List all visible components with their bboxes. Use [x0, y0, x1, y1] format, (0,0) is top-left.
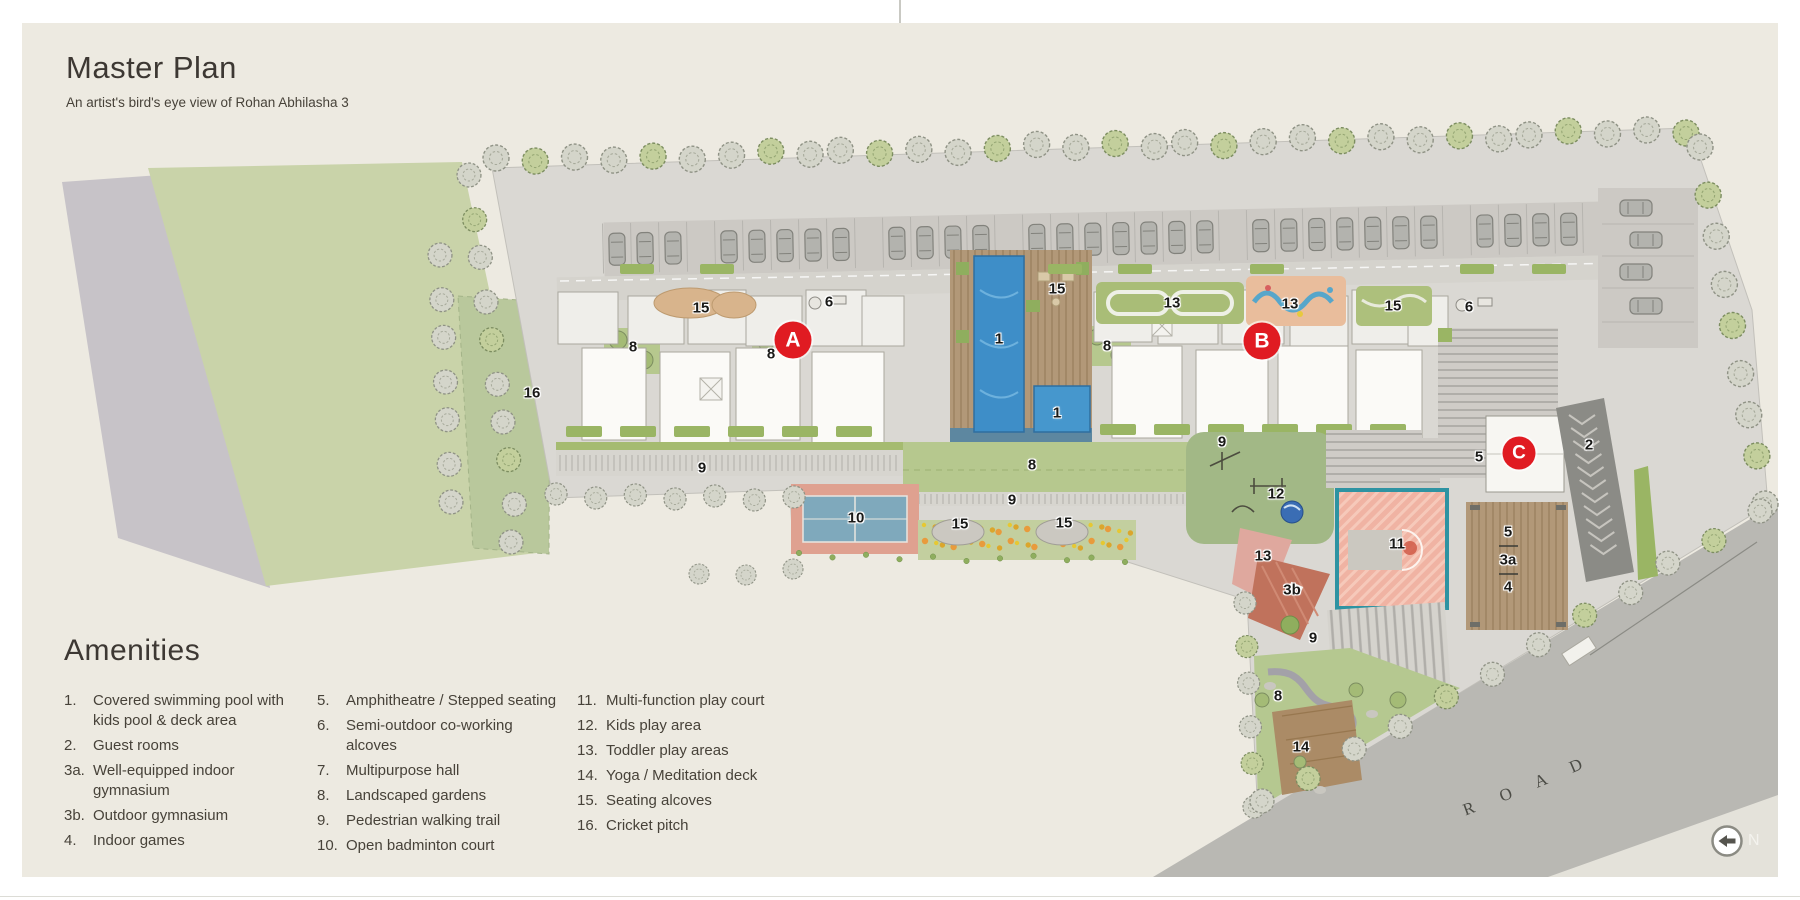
amenity-number: 1. — [64, 691, 93, 731]
amenity-label: Amphitheatre / Stepped seating — [346, 691, 556, 711]
amenity-label: Multipurpose hall — [346, 761, 459, 781]
amenity-number: 8. — [317, 786, 346, 806]
plan-amenity-label: 15 — [693, 300, 710, 317]
amenity-row: 7.Multipurpose hall — [317, 761, 567, 781]
amenities-heading: Amenities — [64, 634, 200, 668]
amenity-label: Multi-function play court — [606, 691, 764, 711]
amenity-number: 16. — [577, 816, 606, 836]
amenity-label: Covered swimming pool with kids pool & d… — [93, 691, 284, 731]
amenity-row: 12.Kids play area — [577, 716, 827, 736]
amenity-number: 7. — [317, 761, 346, 781]
plan-amenity-label: 11 — [1389, 536, 1405, 553]
plan-amenity-label: 9 — [1008, 492, 1016, 509]
plan-amenity-label: 13 — [1282, 296, 1299, 313]
plan-amenity-label: 8 — [1028, 457, 1036, 474]
amenity-label: Seating alcoves — [606, 791, 712, 811]
plan-amenity-label: 5 — [1475, 449, 1483, 466]
amenity-number: 12. — [577, 716, 606, 736]
plan-amenity-label: 6 — [825, 294, 833, 311]
amenity-label: Guest rooms — [93, 736, 179, 756]
amenity-label: Cricket pitch — [606, 816, 689, 836]
amenity-number: 5. — [317, 691, 346, 711]
plan-amenity-label: 16 — [524, 385, 541, 402]
building-marker-c: C — [1503, 437, 1536, 470]
amenity-number: 6. — [317, 716, 346, 756]
amenity-label: Landscaped gardens — [346, 786, 486, 806]
amenities-column-3: 11.Multi-function play court12.Kids play… — [577, 691, 827, 841]
amenity-label: Toddler play areas — [606, 741, 729, 761]
amenity-number: 13. — [577, 741, 606, 761]
plan-amenity-label: 8 — [1274, 688, 1282, 705]
plan-amenity-label: 1 — [995, 331, 1003, 348]
amenity-number: 9. — [317, 811, 346, 831]
page-subtitle: An artist's bird's eye view of Rohan Abh… — [66, 95, 349, 110]
north-label: N — [1748, 832, 1760, 850]
amenity-number: 11. — [577, 691, 606, 711]
amenity-row: 13.Toddler play areas — [577, 741, 827, 761]
plan-amenity-label: 8 — [629, 339, 637, 356]
plan-amenity-label: 13 — [1255, 548, 1272, 565]
amenity-row: 9.Pedestrian walking trail — [317, 811, 567, 831]
amenity-number: 14. — [577, 766, 606, 786]
plan-amenity-label: 3a — [1500, 552, 1517, 569]
amenity-row: 14.Yoga / Meditation deck — [577, 766, 827, 786]
amenity-label: Pedestrian walking trail — [346, 811, 500, 831]
plan-amenity-label: 9 — [1309, 630, 1317, 647]
page-header: Master Plan An artist's bird's eye view … — [66, 50, 349, 110]
amenity-row: 10.Open badminton court — [317, 836, 567, 856]
plan-amenity-label: 9 — [698, 460, 706, 477]
road-label-letter: R — [1460, 798, 1478, 821]
amenity-number: 4. — [64, 831, 93, 851]
amenity-label: Yoga / Meditation deck — [606, 766, 757, 786]
plan-amenity-label: 4 — [1504, 579, 1512, 596]
amenity-label: Outdoor gymnasium — [93, 806, 228, 826]
plan-amenity-label: 1 — [1053, 405, 1061, 422]
amenity-row: 15.Seating alcoves — [577, 791, 827, 811]
page-title: Master Plan — [66, 50, 349, 86]
amenity-label: Semi-outdoor co-working alcoves — [346, 716, 567, 756]
plan-amenity-label: 15 — [1049, 281, 1066, 298]
amenity-row: 11.Multi-function play court — [577, 691, 827, 711]
amenity-row: 3a.Well-equipped indoor gymnasium — [64, 761, 314, 801]
amenities-column-1: 1.Covered swimming pool with kids pool &… — [64, 691, 314, 856]
plan-amenity-label: 8 — [1103, 338, 1111, 355]
amenity-number: 3a. — [64, 761, 93, 801]
plan-amenity-label: 5 — [1504, 524, 1512, 541]
plan-amenity-label: 14 — [1293, 739, 1310, 756]
amenity-number: 15. — [577, 791, 606, 811]
plan-amenity-label: 13 — [1164, 295, 1181, 312]
plan-amenity-label: 2 — [1585, 437, 1593, 454]
north-indicator: N — [1710, 824, 1760, 858]
road-label-letter: O — [1497, 783, 1516, 806]
amenities-column-2: 5.Amphitheatre / Stepped seating6.Semi-o… — [317, 691, 567, 861]
plan-amenity-label: 6 — [1465, 299, 1473, 316]
plan-amenity-label: 3b — [1283, 582, 1301, 599]
amenity-row: 8.Landscaped gardens — [317, 786, 567, 806]
amenity-number: 10. — [317, 836, 346, 856]
amenity-label: Kids play area — [606, 716, 701, 736]
building-marker-b: B — [1244, 323, 1281, 360]
plan-amenity-label: 15 — [1056, 515, 1073, 532]
road-label-letter: A — [1532, 769, 1551, 792]
plan-amenity-label: 15 — [1385, 298, 1402, 315]
plan-amenity-label: 9 — [1218, 434, 1226, 451]
amenity-row: 16.Cricket pitch — [577, 816, 827, 836]
amenity-row: 4.Indoor games — [64, 831, 314, 851]
amenity-row: 2.Guest rooms — [64, 736, 314, 756]
amenity-label: Well-equipped indoor gymnasium — [93, 761, 314, 801]
north-arrow-icon — [1710, 824, 1744, 858]
amenity-row: 3b.Outdoor gymnasium — [64, 806, 314, 826]
amenity-row: 1.Covered swimming pool with kids pool &… — [64, 691, 314, 731]
road-label-letter: D — [1566, 754, 1585, 777]
amenity-number: 3b. — [64, 806, 93, 826]
plan-amenity-label: 8 — [767, 346, 775, 363]
amenity-label: Indoor games — [93, 831, 185, 851]
amenity-number: 2. — [64, 736, 93, 756]
amenity-label: Open badminton court — [346, 836, 494, 856]
plan-amenity-label: 10 — [848, 510, 865, 527]
plan-amenity-label: 12 — [1268, 486, 1285, 503]
amenity-row: 6.Semi-outdoor co-working alcoves — [317, 716, 567, 756]
amenity-row: 5.Amphitheatre / Stepped seating — [317, 691, 567, 711]
building-marker-a: A — [775, 322, 812, 359]
plan-amenity-label: 15 — [952, 516, 969, 533]
